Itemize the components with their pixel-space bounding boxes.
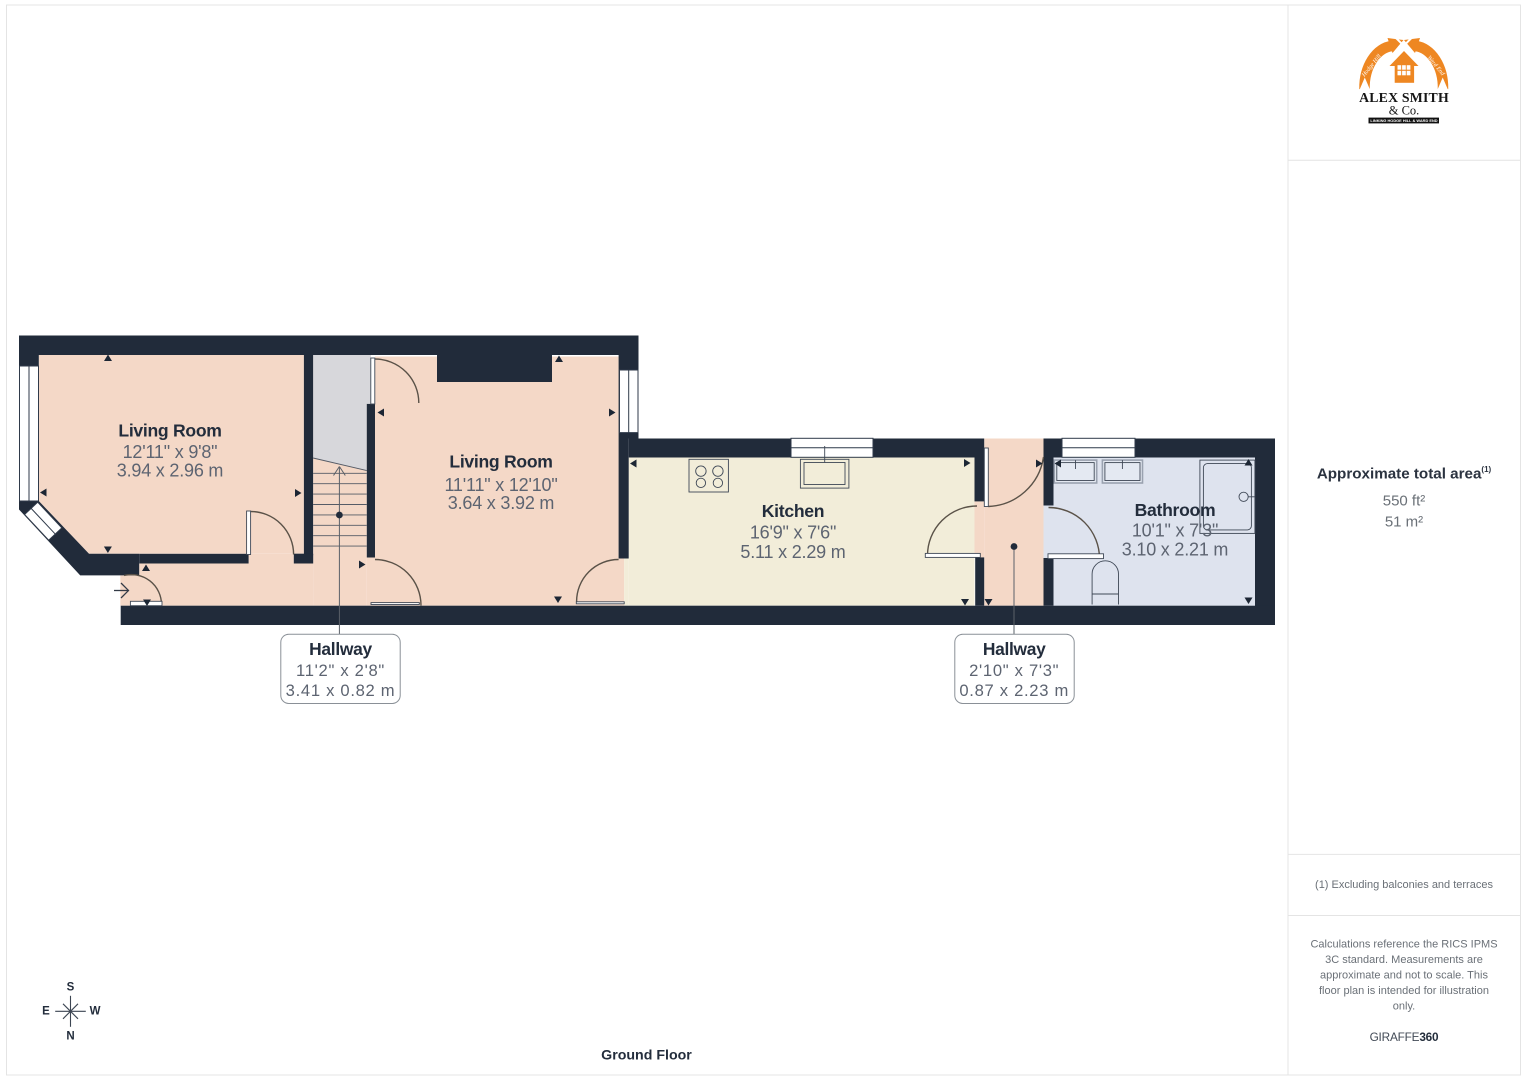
svg-text:S: S [67,982,75,994]
svg-text:Bathroom: Bathroom [1135,500,1216,520]
svg-text:N: N [66,1031,74,1043]
svg-text:3.64 x 3.92 m: 3.64 x 3.92 m [448,493,554,513]
svg-text:Approximate total area(1): Approximate total area(1) [1317,465,1492,483]
svg-text:Kitchen: Kitchen [762,501,824,521]
svg-text:approximate and not to scale.: approximate and not to scale. This [1320,970,1488,982]
svg-text:only.: only. [1393,1001,1415,1013]
svg-text:& Co.: & Co. [1389,104,1420,118]
svg-text:10'1" x 7'3": 10'1" x 7'3" [1132,521,1218,541]
svg-text:3.94 x 2.96 m: 3.94 x 2.96 m [117,461,223,481]
svg-text:3C standard. Measurements are: 3C standard. Measurements are [1325,954,1483,966]
svg-text:Hallway: Hallway [983,639,1046,659]
svg-text:Hallway: Hallway [309,639,372,659]
svg-text:(1) Excluding balconies and te: (1) Excluding balconies and terraces [1315,879,1493,891]
svg-text:W: W [90,1006,101,1018]
svg-text:51 m²: 51 m² [1385,514,1423,531]
svg-text:Living Room: Living Room [449,452,552,472]
svg-text:2'10" x 7'3": 2'10" x 7'3" [969,661,1059,680]
svg-text:11'11" x 12'10": 11'11" x 12'10" [444,475,557,495]
svg-text:3.41 x 0.82 m: 3.41 x 0.82 m [286,681,396,700]
svg-text:Living Room: Living Room [118,421,221,441]
svg-text:550 ft²: 550 ft² [1383,493,1426,510]
svg-text:floor plan is intended for ill: floor plan is intended for illustration [1319,985,1489,997]
svg-text:0.87 x 2.23 m: 0.87 x 2.23 m [959,681,1069,700]
svg-text:5.11 x 2.29 m: 5.11 x 2.29 m [740,542,845,562]
svg-text:LINKING HODGE HILL & WARD END: LINKING HODGE HILL & WARD END [1370,118,1437,123]
svg-text:Calculations reference the RIC: Calculations reference the RICS IPMS [1310,939,1497,951]
svg-text:12'11" x 9'8": 12'11" x 9'8" [123,442,218,462]
svg-text:E: E [42,1006,50,1018]
svg-text:Ground Floor: Ground Floor [601,1048,692,1064]
svg-text:11'2" x 2'8": 11'2" x 2'8" [296,661,385,680]
svg-text:GIRAFFE360: GIRAFFE360 [1370,1030,1439,1044]
svg-text:3.10 x 2.21 m: 3.10 x 2.21 m [1122,540,1228,560]
svg-text:16'9" x 7'6": 16'9" x 7'6" [750,523,836,543]
